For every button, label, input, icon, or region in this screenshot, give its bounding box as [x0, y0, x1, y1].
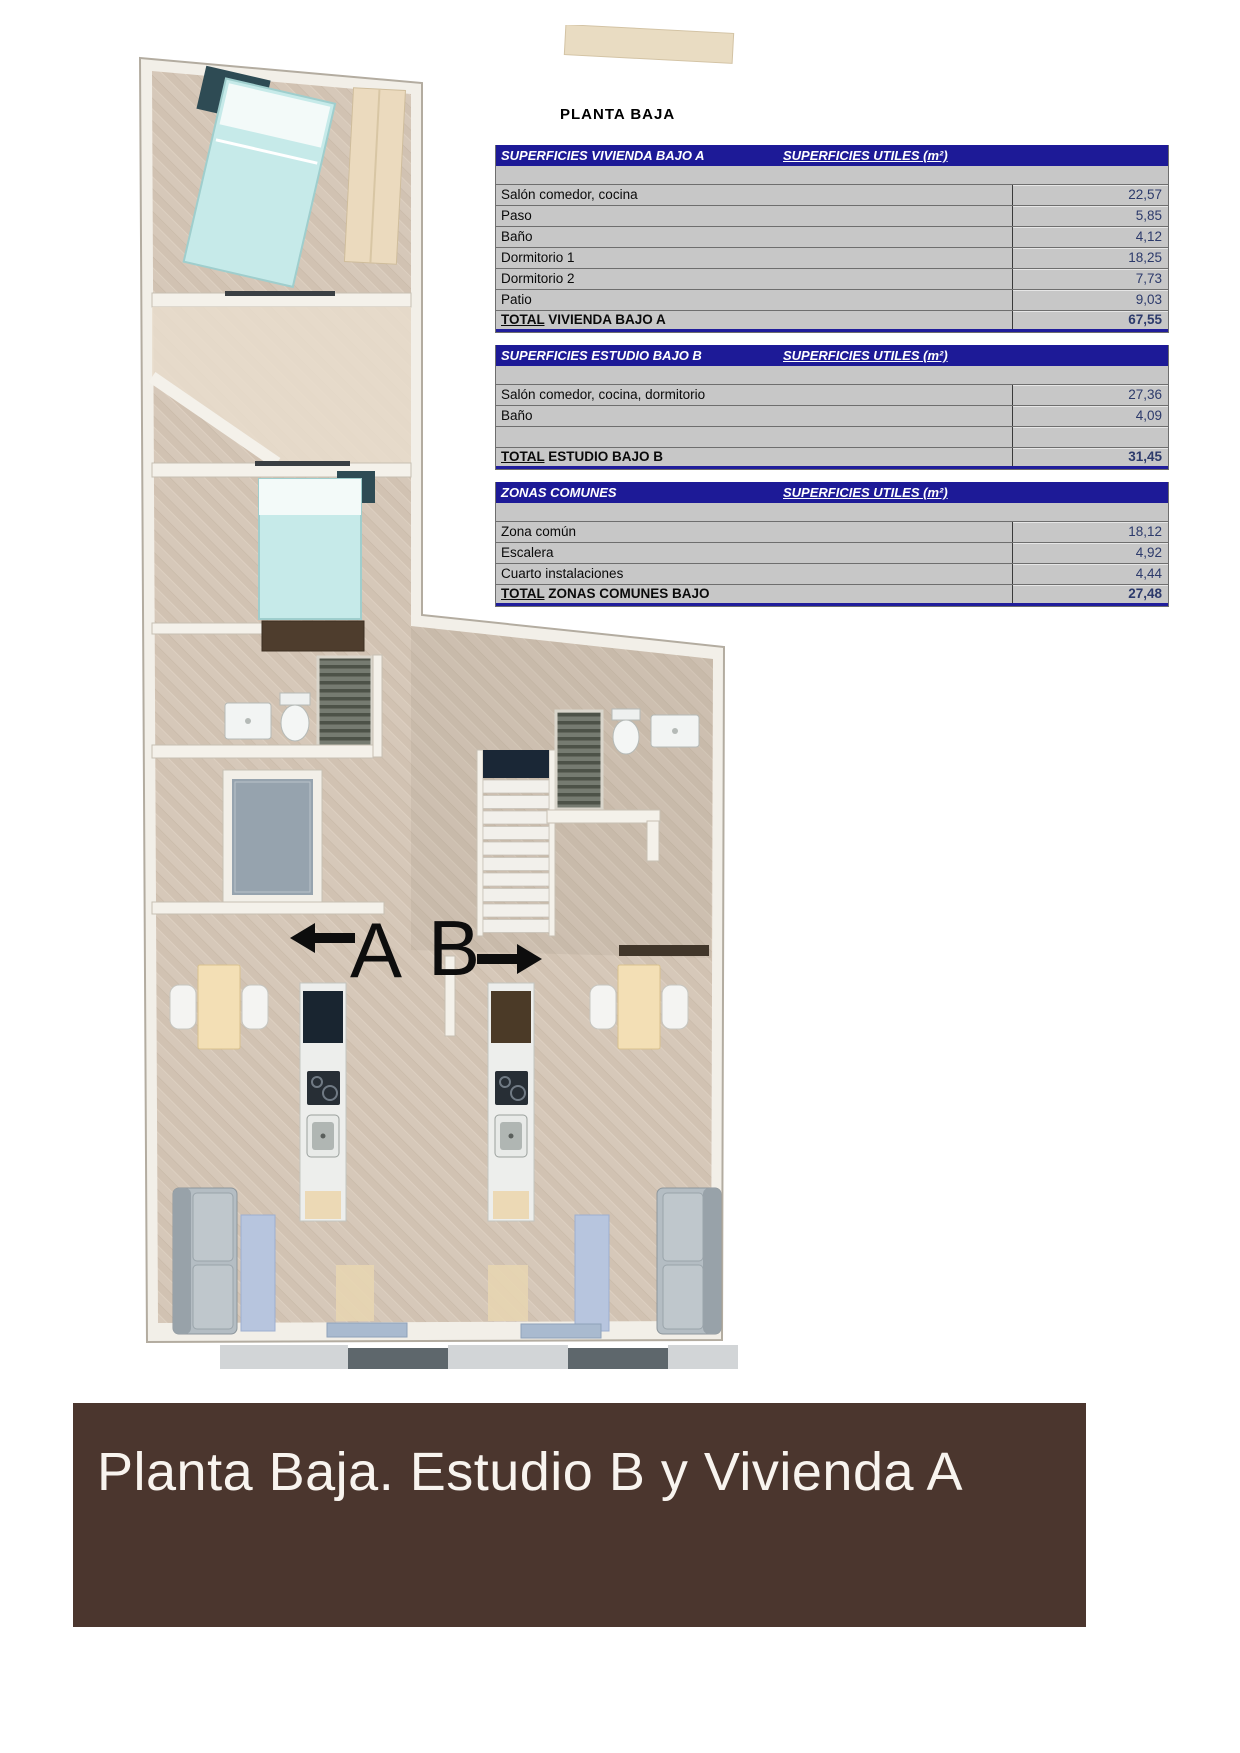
adjacent-wall [564, 25, 733, 63]
units-header: SUPERFICIES UTILES (m²) [783, 145, 948, 166]
window-sill [568, 1348, 668, 1369]
unit-b-label: B [428, 904, 480, 992]
table-title: SUPERFICIES VIVIENDA BAJO A [496, 148, 704, 163]
counter-dark [303, 991, 343, 1043]
chair [170, 985, 196, 1029]
window [521, 1324, 601, 1338]
shower-a [318, 657, 372, 747]
table-row: Patio 9,03 [496, 289, 1168, 310]
interior-wall [152, 745, 373, 758]
interior-wall [547, 810, 660, 823]
window-sill [220, 1345, 348, 1369]
single-bed [259, 471, 375, 619]
window-sill [448, 1345, 568, 1369]
washbasin-a [225, 703, 271, 739]
unit-a-label: A [350, 906, 402, 994]
staircase [477, 750, 555, 936]
table-title: SUPERFICIES ESTUDIO BAJO B [496, 348, 702, 363]
door-threshold [488, 1265, 528, 1321]
shower-b [556, 711, 602, 809]
units-header: SUPERFICIES UTILES (m²) [783, 345, 948, 366]
doormat [619, 945, 709, 956]
counter-dark [491, 991, 531, 1043]
spacer-row [496, 503, 1168, 521]
window [327, 1323, 407, 1337]
table-title: ZONAS COMUNES [496, 485, 617, 500]
patio [223, 770, 322, 904]
chair [242, 985, 268, 1029]
window-sill [348, 1348, 448, 1369]
window-sill [668, 1345, 738, 1369]
door-lintel [225, 291, 335, 296]
footer-caption: Planta Baja. Estudio B y Vivienda A [97, 1441, 963, 1503]
table-row: Baño 4,09 [496, 405, 1168, 426]
units-header: SUPERFICIES UTILES (m²) [783, 482, 948, 503]
door-lintel [255, 461, 350, 466]
chair [662, 985, 688, 1029]
interior-wall [647, 821, 659, 861]
rug-a [241, 1215, 275, 1331]
table-header: SUPERFICIES ESTUDIO BAJO B SUPERFICIES U… [496, 345, 1168, 366]
table-estudio-bajo-b: SUPERFICIES ESTUDIO BAJO B SUPERFICIES U… [495, 345, 1169, 470]
bed-pillow [259, 479, 361, 515]
toilet-a [280, 693, 310, 741]
spacer-row [496, 166, 1168, 184]
table-row: Paso 5,85 [496, 205, 1168, 226]
sofa-left [173, 1188, 237, 1334]
table-total-row: TOTAL VIVIENDA BAJO A 67,55 [496, 310, 1168, 332]
table-row [496, 426, 1168, 447]
table-row: Salón comedor, cocina 22,57 [496, 184, 1168, 205]
brochure-page: A B [0, 0, 1240, 1753]
washbasin-b [651, 715, 699, 747]
page-title: PLANTA BAJA [560, 106, 675, 123]
table-row: Escalera 4,92 [496, 542, 1168, 563]
toilet-b [612, 709, 640, 754]
table-row: Baño 4,12 [496, 226, 1168, 247]
door-threshold [336, 1265, 374, 1321]
sideboard [262, 621, 364, 651]
table-total-row: TOTAL ZONAS COMUNES BAJO 27,48 [496, 584, 1168, 606]
table-row: Zona común 18,12 [496, 521, 1168, 542]
kitchen-island-a [300, 983, 346, 1221]
spacer-row [496, 366, 1168, 384]
table-zonas-comunes: ZONAS COMUNES SUPERFICIES UTILES (m²) Zo… [495, 482, 1169, 607]
table-header: ZONAS COMUNES SUPERFICIES UTILES (m²) [496, 482, 1168, 503]
stair-landing [483, 750, 549, 778]
table-row: Dormitorio 2 7,73 [496, 268, 1168, 289]
table-total-row: TOTAL ESTUDIO BAJO B 31,45 [496, 447, 1168, 469]
wardrobe [344, 88, 405, 264]
table-header: SUPERFICIES VIVIENDA BAJO A SUPERFICIES … [496, 145, 1168, 166]
sofa-right [657, 1188, 721, 1334]
table-row: Cuarto instalaciones 4,44 [496, 563, 1168, 584]
table-vivienda-bajo-a: SUPERFICIES VIVIENDA BAJO A SUPERFICIES … [495, 145, 1169, 333]
footer-banner: Planta Baja. Estudio B y Vivienda A [73, 1403, 1086, 1627]
table-row: Salón comedor, cocina, dormitorio 27,36 [496, 384, 1168, 405]
rug-b [575, 1215, 609, 1331]
table-row: Dormitorio 1 18,25 [496, 247, 1168, 268]
kitchen-island-b [488, 983, 534, 1221]
interior-wall [373, 655, 382, 757]
surface-tables: SUPERFICIES VIVIENDA BAJO A SUPERFICIES … [495, 145, 1169, 619]
interior-wall [152, 623, 262, 634]
chair [590, 985, 616, 1029]
